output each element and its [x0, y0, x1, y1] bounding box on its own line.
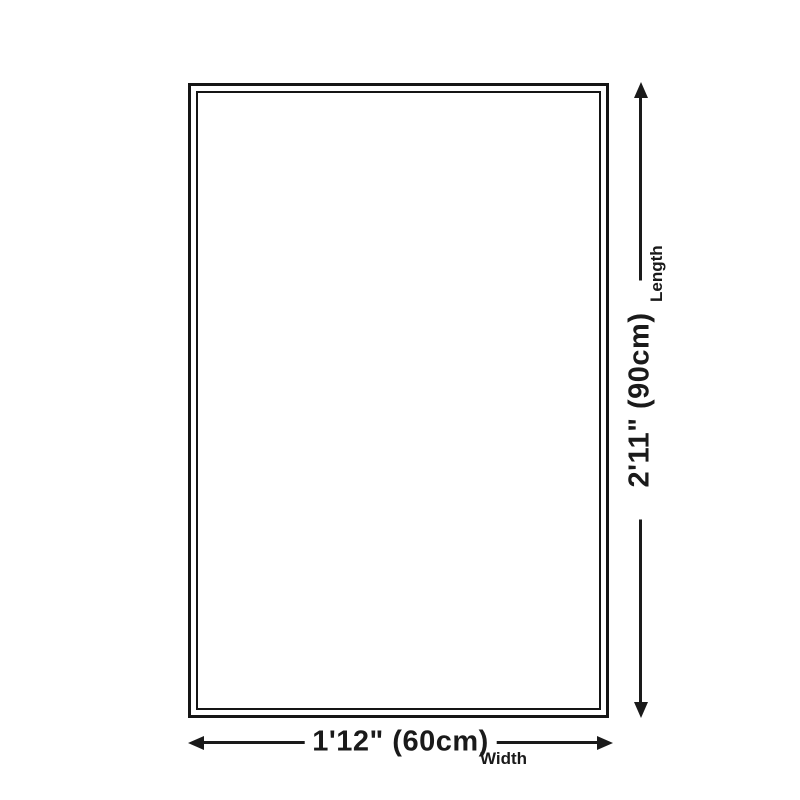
- length-dimension: 2'11" (90cm) Length: [620, 82, 664, 718]
- length-value: 2'11" (90cm): [624, 281, 657, 520]
- rug-inner-border: [196, 91, 601, 710]
- arrow-up-icon: [634, 82, 648, 98]
- length-label: Length: [647, 245, 667, 302]
- width-label: Width: [480, 749, 527, 769]
- width-dimension: 1'12" (60cm) Width: [188, 722, 613, 766]
- width-value: 1'12" (60cm): [304, 726, 497, 759]
- arrow-right-icon: [597, 736, 613, 750]
- dimension-diagram: 2'11" (90cm) Length 1'12" (60cm) Width: [0, 0, 800, 800]
- rug-outline: [188, 83, 609, 718]
